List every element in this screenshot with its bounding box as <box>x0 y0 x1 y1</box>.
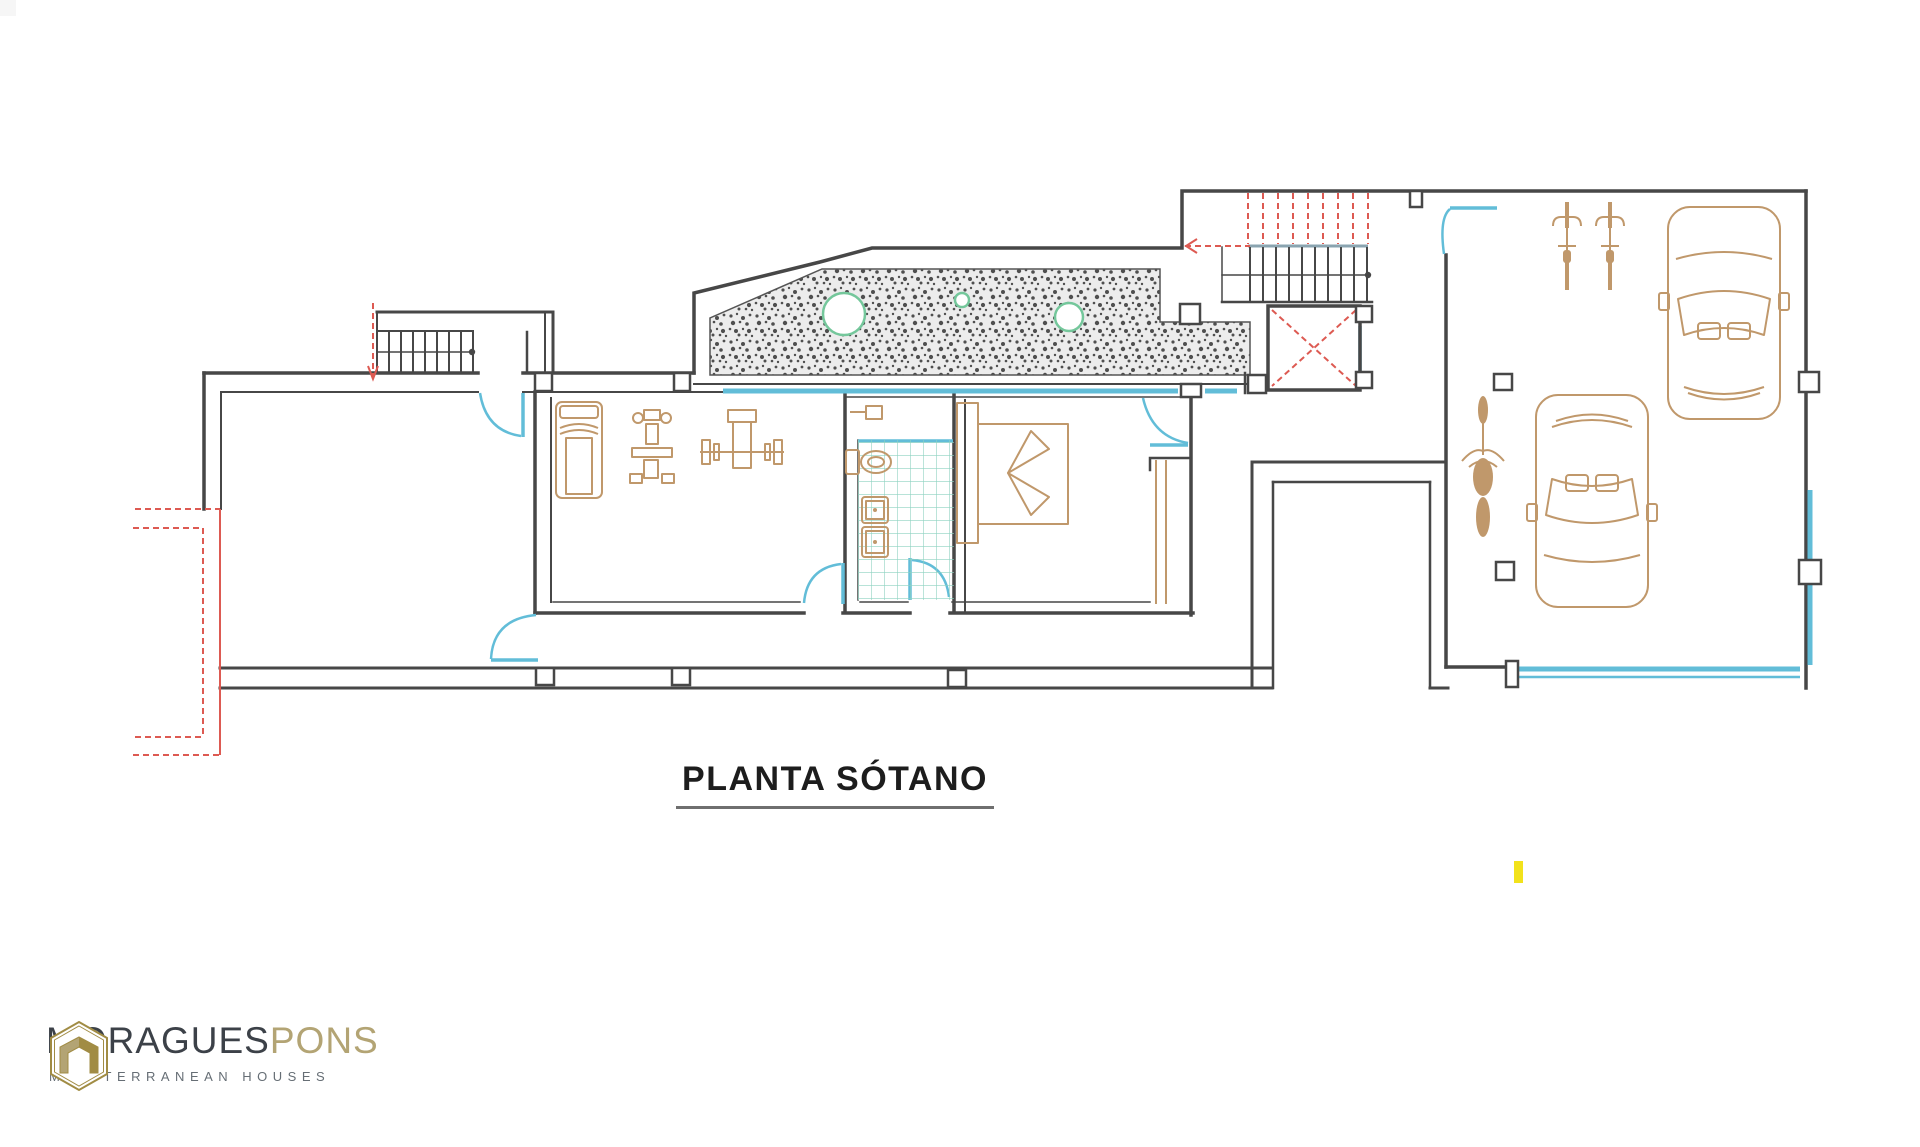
car-icon <box>1659 207 1789 419</box>
car-icon <box>1527 395 1657 607</box>
wardrobe-icon <box>1150 458 1190 604</box>
plan-title-text: PLANTA SÓTANO <box>676 760 994 809</box>
access-ramp <box>133 509 220 755</box>
floor-plan-drawing <box>0 0 1920 1147</box>
entry-stairs <box>368 303 475 379</box>
gym-room <box>556 402 784 498</box>
sink-icon <box>862 497 888 523</box>
double-bed-icon <box>957 403 1068 543</box>
bench-press-icon <box>700 410 784 468</box>
bedroom-door <box>1143 398 1188 445</box>
hexagon-house-icon <box>46 1020 112 1092</box>
plan-title: PLANTA SÓTANO <box>645 760 1025 809</box>
toilet-paper-icon <box>850 406 882 419</box>
company-logo: MORAGUESPONS MEDITERRANEAN HOUSES <box>46 1020 379 1084</box>
bicycle-icon <box>1596 202 1624 290</box>
main-room-door <box>491 615 538 660</box>
vestibule-door <box>480 393 523 437</box>
brand-name-secondary: PONS <box>270 1020 379 1061</box>
exercise-machine-icon <box>630 410 674 483</box>
page: PLANTA SÓTANO MORAGUESPONS MEDITERRANEAN… <box>0 0 1920 1147</box>
interior-staircase <box>1185 193 1372 302</box>
bedroom <box>957 403 1190 604</box>
terrain-section <box>710 269 1250 375</box>
treadmill-icon <box>556 402 602 498</box>
motorcycle-icon <box>1462 396 1504 537</box>
gym-door <box>804 563 843 604</box>
garage-door <box>1442 208 1497 254</box>
highlight-marker <box>1514 861 1523 883</box>
sink-icon <box>862 527 888 557</box>
bicycle-icon <box>1553 202 1581 290</box>
bathroom <box>846 406 954 600</box>
garage <box>1462 202 1789 607</box>
